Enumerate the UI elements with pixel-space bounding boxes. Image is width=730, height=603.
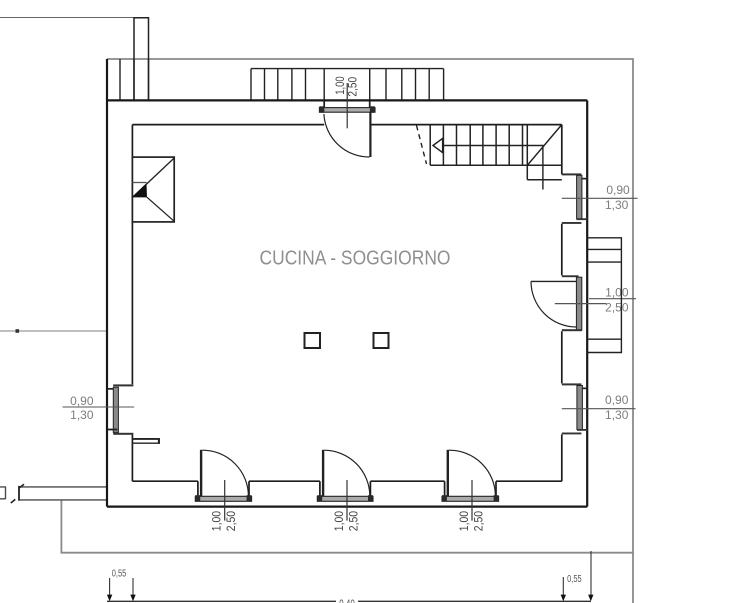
svg-text:2,50: 2,50 <box>473 511 485 531</box>
svg-text:0,90: 0,90 <box>70 394 94 408</box>
svg-text:1,30: 1,30 <box>70 408 94 422</box>
svg-text:1,00: 1,00 <box>212 511 224 531</box>
svg-text:2,50: 2,50 <box>226 511 238 531</box>
svg-text:0,55: 0,55 <box>112 569 127 580</box>
svg-text:1,00: 1,00 <box>459 511 471 531</box>
svg-text:1,30: 1,30 <box>605 408 629 422</box>
svg-text:2,50: 2,50 <box>348 511 360 531</box>
svg-text:0,90: 0,90 <box>605 393 629 407</box>
svg-text:2,50: 2,50 <box>605 301 629 315</box>
svg-text:1,30: 1,30 <box>605 198 629 212</box>
svg-text:0,55: 0,55 <box>567 574 582 585</box>
svg-text:CUCINA - SOGGIORNO: CUCINA - SOGGIORNO <box>260 247 451 270</box>
svg-text:1,00: 1,00 <box>605 286 629 300</box>
svg-text:1,00: 1,00 <box>335 76 347 95</box>
svg-text:2,50: 2,50 <box>347 77 359 97</box>
svg-text:9,40: 9,40 <box>339 597 355 603</box>
svg-text:1,00: 1,00 <box>334 511 346 531</box>
svg-text:0,90: 0,90 <box>606 183 630 197</box>
